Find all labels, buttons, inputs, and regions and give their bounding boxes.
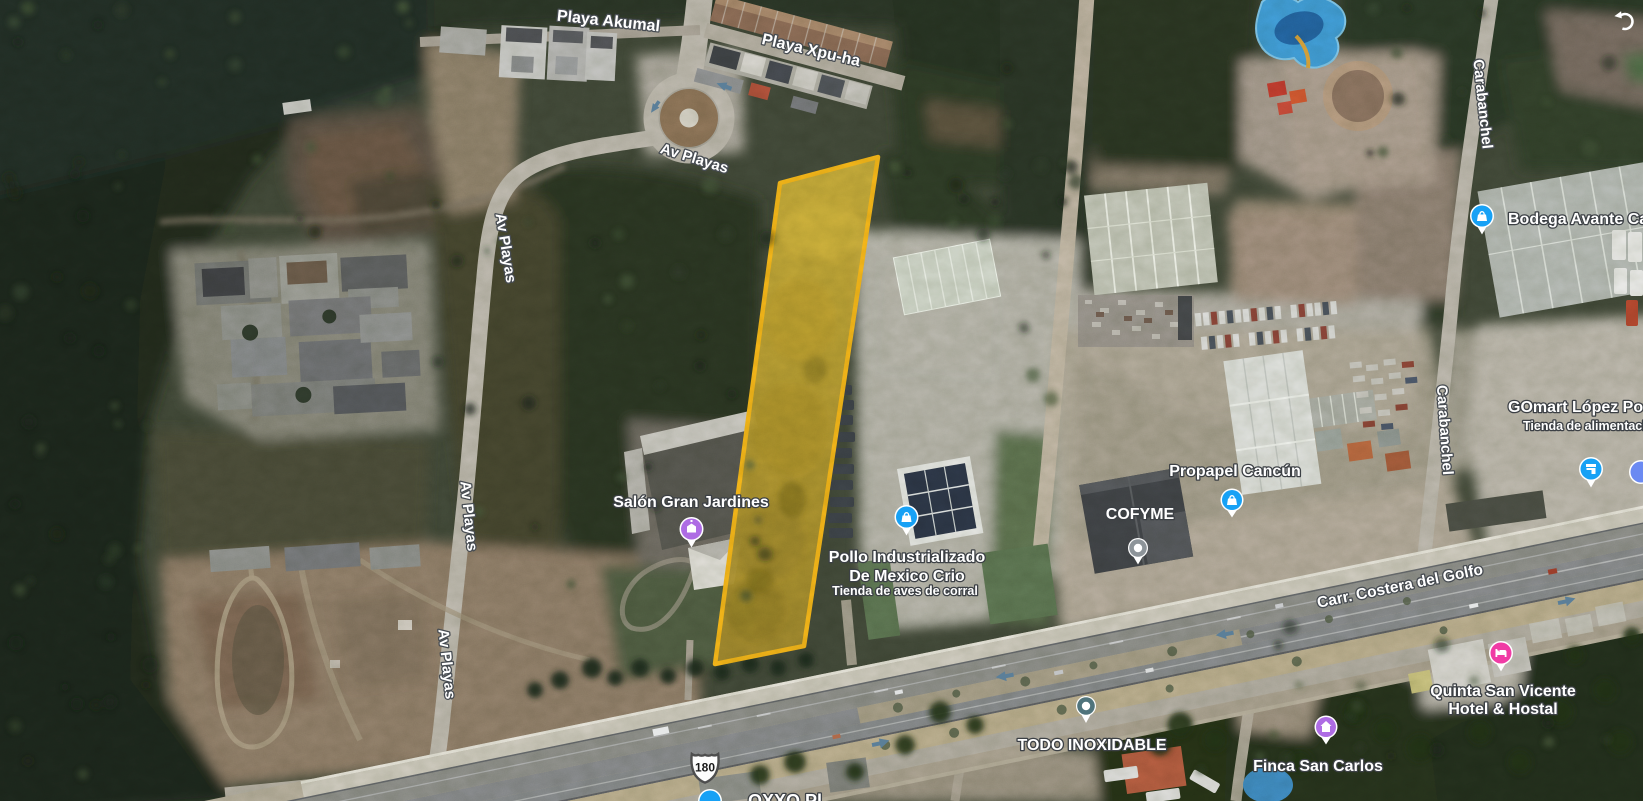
svg-text:Propapel Cancún: Propapel Cancún bbox=[1169, 463, 1301, 480]
svg-text:GOmart López Port: GOmart López Port bbox=[1508, 399, 1643, 416]
svg-text:Bodega Avante Can: Bodega Avante Can bbox=[1508, 211, 1643, 228]
svg-text:Hotel & Hostal: Hotel & Hostal bbox=[1448, 701, 1557, 718]
svg-text:De Mexico Crio: De Mexico Crio bbox=[849, 568, 965, 585]
svg-text:Pollo Industrializado: Pollo Industrializado bbox=[829, 549, 986, 566]
svg-text:Finca San Carlos: Finca San Carlos bbox=[1253, 758, 1383, 775]
svg-text:OXXO Pl: OXXO Pl bbox=[748, 791, 822, 801]
svg-text:Tienda de alimentación: Tienda de alimentación bbox=[1523, 419, 1643, 433]
svg-text:Tienda de aves de corral: Tienda de aves de corral bbox=[832, 584, 978, 598]
svg-text:Quinta San Vicente: Quinta San Vicente bbox=[1430, 683, 1576, 700]
svg-text:180: 180 bbox=[695, 761, 715, 775]
svg-text:Salón Gran Jardines: Salón Gran Jardines bbox=[613, 494, 769, 511]
svg-text:COFYME: COFYME bbox=[1106, 506, 1175, 523]
svg-text:TODO INOXIDABLE: TODO INOXIDABLE bbox=[1017, 737, 1166, 754]
